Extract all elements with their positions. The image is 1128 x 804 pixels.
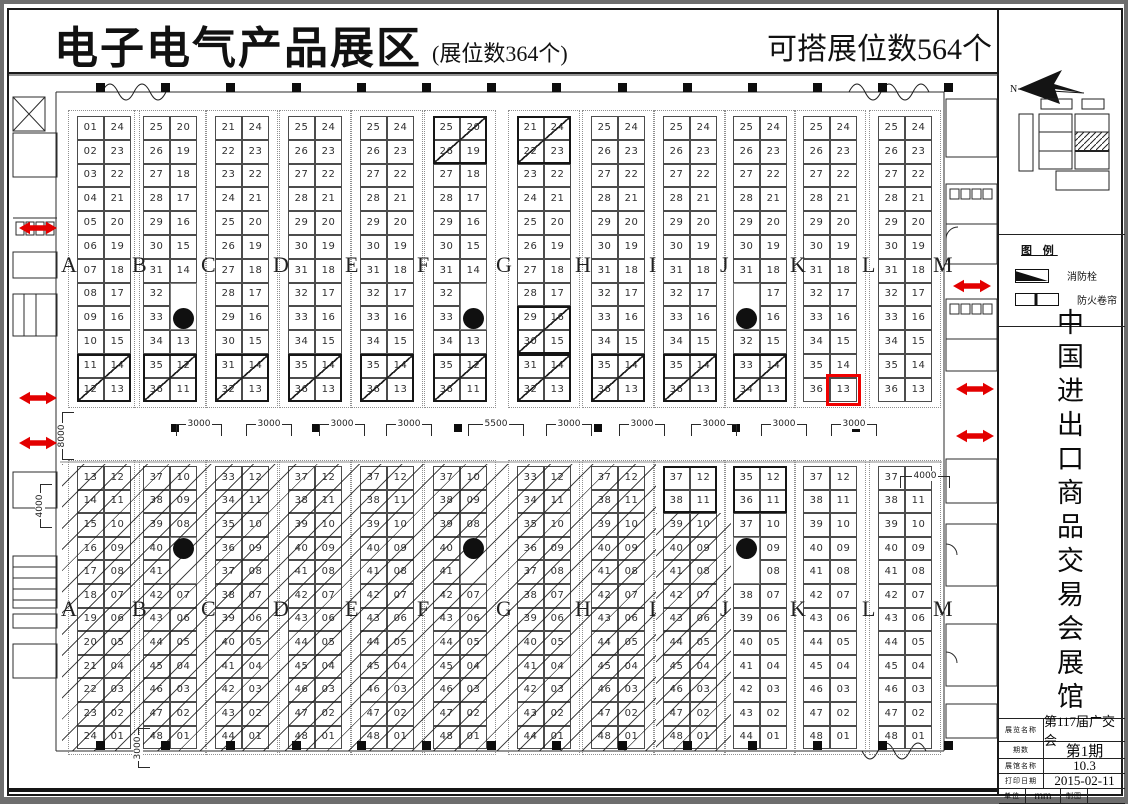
booth-cell: 42 bbox=[663, 584, 690, 608]
dimension-label: 3000 bbox=[246, 424, 292, 437]
sold-booth-block bbox=[517, 306, 571, 354]
booth-cell: 45 bbox=[433, 655, 460, 679]
booth-cell: 09 bbox=[618, 537, 645, 561]
booth-cell: 04 bbox=[460, 655, 487, 679]
booth-cell: 34 bbox=[143, 330, 170, 354]
booth-cell: 17 bbox=[905, 283, 932, 307]
booth-cell: 03 bbox=[387, 678, 414, 702]
booth-cell: 42 bbox=[360, 584, 387, 608]
booth-cell: 20 bbox=[690, 211, 717, 235]
booth-cell: 23 bbox=[242, 140, 269, 164]
booth-cell: 38 bbox=[215, 584, 242, 608]
booth-cell: 34 bbox=[288, 330, 315, 354]
booth-cell: 29 bbox=[433, 211, 460, 235]
booth-cell: 15 bbox=[760, 330, 787, 354]
booth-cell: 25 bbox=[215, 211, 242, 235]
reserved-booth-block bbox=[663, 466, 717, 513]
booth-cell: 42 bbox=[878, 584, 905, 608]
booth-cell: 06 bbox=[170, 608, 197, 632]
booth-cell: 44 bbox=[878, 631, 905, 655]
booth-cell: 01 bbox=[104, 726, 131, 750]
wall-pillar bbox=[357, 741, 366, 750]
booth-cell: 43 bbox=[591, 608, 618, 632]
booth-cell: 14 bbox=[905, 354, 932, 378]
booth-cell: 04 bbox=[104, 655, 131, 679]
column-letter: K bbox=[790, 596, 806, 622]
booth-cell: 13 bbox=[905, 378, 932, 402]
wall-pillar bbox=[96, 83, 105, 92]
booth-cell: 25 bbox=[803, 116, 830, 140]
booth-cell: 04 bbox=[170, 655, 197, 679]
column-letter: E bbox=[345, 252, 358, 278]
booth-cell: 16 bbox=[170, 211, 197, 235]
booth-cell: 25 bbox=[663, 116, 690, 140]
wall-pillar bbox=[161, 83, 170, 92]
booth-cell: 25 bbox=[143, 116, 170, 140]
booth-cell: 37 bbox=[143, 466, 170, 490]
booth-cell: 06 bbox=[830, 608, 857, 632]
booth-cell: 28 bbox=[517, 283, 544, 307]
booth-cell: 18 bbox=[170, 164, 197, 188]
booth-cell: 03 bbox=[544, 678, 571, 702]
booth-cell: 39 bbox=[517, 608, 544, 632]
booth-cell: 26 bbox=[733, 140, 760, 164]
titleblock-value: 第117届广交会 bbox=[1044, 719, 1125, 741]
booth-cell: 33 bbox=[591, 306, 618, 330]
booth-cell: 31 bbox=[433, 259, 460, 283]
wall-pillar bbox=[944, 83, 953, 92]
booth-cell: 30 bbox=[803, 235, 830, 259]
booth-cell: 01 bbox=[77, 116, 104, 140]
booth-cell: 01 bbox=[242, 726, 269, 750]
column-letter: B bbox=[132, 252, 147, 278]
booth-cell: 06 bbox=[760, 608, 787, 632]
booth-cell: 26 bbox=[143, 140, 170, 164]
booth-cell: 04 bbox=[618, 655, 645, 679]
booth-cell: 07 bbox=[104, 584, 131, 608]
structural-pillar bbox=[463, 308, 484, 329]
booth-cell: 07 bbox=[387, 584, 414, 608]
booth-cell: 22 bbox=[315, 164, 342, 188]
booth-cell: 41 bbox=[733, 655, 760, 679]
booth-cell: 21 bbox=[760, 187, 787, 211]
booth-cell: 06 bbox=[460, 608, 487, 632]
booth-cell: 16 bbox=[242, 306, 269, 330]
booth-cell: 28 bbox=[591, 187, 618, 211]
booth-cell: 21 bbox=[242, 187, 269, 211]
booth-cell: 07 bbox=[77, 259, 104, 283]
booth-cell: 10 bbox=[830, 513, 857, 537]
aisle-pillar bbox=[454, 424, 462, 432]
booth-cell: 23 bbox=[618, 140, 645, 164]
booth-cell: 19 bbox=[104, 235, 131, 259]
structural-pillar bbox=[736, 538, 757, 559]
booth-cell: 34 bbox=[517, 490, 544, 514]
booth-cell: 44 bbox=[663, 631, 690, 655]
booth-cell: 45 bbox=[803, 655, 830, 679]
booth-cell: 21 bbox=[387, 187, 414, 211]
wall-pillar bbox=[226, 83, 235, 92]
booth-cell: 12 bbox=[387, 466, 414, 490]
sold-booth-block bbox=[663, 354, 717, 402]
dimension-label: 3000 bbox=[831, 424, 877, 437]
booth-cell: 38 bbox=[433, 490, 460, 514]
booth-cell: 33 bbox=[517, 466, 544, 490]
exit-arrow-icon bbox=[952, 278, 992, 294]
booth-cell: 29 bbox=[733, 211, 760, 235]
column-letter: F bbox=[417, 596, 429, 622]
booth-cell: 29 bbox=[663, 211, 690, 235]
wall-pillar bbox=[487, 741, 496, 750]
booth-cell: 47 bbox=[803, 702, 830, 726]
booth-cell: 17 bbox=[544, 283, 571, 307]
booth-cell: 09 bbox=[460, 490, 487, 514]
booth-cell: 44 bbox=[360, 631, 387, 655]
booth-cell: 15 bbox=[830, 330, 857, 354]
booth-cell: 27 bbox=[803, 164, 830, 188]
booth-cell: 15 bbox=[460, 235, 487, 259]
booth-cell: 28 bbox=[803, 187, 830, 211]
booth-cell: 34 bbox=[663, 330, 690, 354]
booth-cell: 33 bbox=[433, 306, 460, 330]
titleblock-value: 10.3 bbox=[1044, 759, 1125, 773]
reserved-booth-block bbox=[733, 466, 787, 513]
booth-cell: 05 bbox=[315, 631, 342, 655]
booth-cell: 23 bbox=[315, 140, 342, 164]
booth-cell: 02 bbox=[690, 702, 717, 726]
booth-cell: 21 bbox=[315, 187, 342, 211]
booth-cell: 18 bbox=[618, 259, 645, 283]
booth-cell: 07 bbox=[905, 584, 932, 608]
booth-cell: 09 bbox=[690, 537, 717, 561]
booth-cell: 36 bbox=[215, 537, 242, 561]
booth-cell: 04 bbox=[905, 655, 932, 679]
wall-pillar bbox=[618, 83, 627, 92]
booth-cell: 41 bbox=[215, 655, 242, 679]
booth-cell: 31 bbox=[143, 259, 170, 283]
booth-cell: 21 bbox=[77, 655, 104, 679]
dimension-label: 3000 bbox=[761, 424, 807, 437]
booth-cell: 29 bbox=[288, 211, 315, 235]
booth-cell: 02 bbox=[618, 702, 645, 726]
booth-cell: 17 bbox=[104, 283, 131, 307]
booth-cell: 40 bbox=[663, 537, 690, 561]
booth-cell: 23 bbox=[690, 140, 717, 164]
booth-cell: 02 bbox=[77, 140, 104, 164]
sold-booth-block bbox=[360, 354, 414, 402]
column-letter: D bbox=[273, 252, 289, 278]
wall-pillar bbox=[226, 741, 235, 750]
wall-pillar bbox=[422, 741, 431, 750]
booth-cell: 31 bbox=[663, 259, 690, 283]
booth-cell: 35 bbox=[878, 354, 905, 378]
booth-cell: 12 bbox=[242, 466, 269, 490]
booth-cell: 06 bbox=[905, 608, 932, 632]
booth-cell: 39 bbox=[803, 513, 830, 537]
wall-pillar bbox=[487, 83, 496, 92]
booth-cell: 38 bbox=[288, 490, 315, 514]
booth-cell: 18 bbox=[544, 259, 571, 283]
booth-cell: 33 bbox=[215, 466, 242, 490]
booth-cell: 30 bbox=[733, 235, 760, 259]
booth-cell: 47 bbox=[433, 702, 460, 726]
booth-cell: 05 bbox=[104, 631, 131, 655]
booth-cell: 24 bbox=[905, 116, 932, 140]
booth-cell: 05 bbox=[830, 631, 857, 655]
titleblock-label: 打印日期 bbox=[999, 774, 1044, 788]
booth-cell: 23 bbox=[760, 140, 787, 164]
booth-cell: 29 bbox=[360, 211, 387, 235]
booth-cell: 39 bbox=[663, 513, 690, 537]
booth-cell: 33 bbox=[360, 306, 387, 330]
booth-cell: 22 bbox=[77, 678, 104, 702]
booth-cell: 07 bbox=[242, 584, 269, 608]
booth-cell: 24 bbox=[242, 116, 269, 140]
booth-cell: 44 bbox=[803, 631, 830, 655]
booth-cell: 05 bbox=[387, 631, 414, 655]
booth-cell: 01 bbox=[460, 726, 487, 750]
booth-cell: 44 bbox=[143, 631, 170, 655]
booth-cell: 15 bbox=[242, 330, 269, 354]
booth-cell: 42 bbox=[215, 678, 242, 702]
booth-cell: 45 bbox=[143, 655, 170, 679]
booth-cell: 37 bbox=[591, 466, 618, 490]
booth-cell: 30 bbox=[288, 235, 315, 259]
column-letter: H bbox=[575, 252, 591, 278]
booth-cell: 22 bbox=[242, 164, 269, 188]
wall-pillar bbox=[357, 83, 366, 92]
booth-cell: 26 bbox=[215, 235, 242, 259]
booth-cell: 39 bbox=[878, 513, 905, 537]
booth-cell: 28 bbox=[733, 187, 760, 211]
booth-cell: 27 bbox=[663, 164, 690, 188]
booth-cell: 17 bbox=[760, 283, 787, 307]
booth-cell: 19 bbox=[77, 608, 104, 632]
booth-cell: 40 bbox=[288, 537, 315, 561]
booth-cell: 06 bbox=[315, 608, 342, 632]
booth-cell: 14 bbox=[170, 259, 197, 283]
booth-cell: 25 bbox=[591, 116, 618, 140]
booth-cell: 47 bbox=[143, 702, 170, 726]
booth-cell: 18 bbox=[690, 259, 717, 283]
booth-cell: 27 bbox=[143, 164, 170, 188]
booth-cell: 21 bbox=[104, 187, 131, 211]
booth-cell: 37 bbox=[433, 466, 460, 490]
booth-cell: 19 bbox=[387, 235, 414, 259]
booth-cell: 23 bbox=[517, 164, 544, 188]
wall-pillar bbox=[748, 741, 757, 750]
exit-arrow-icon bbox=[18, 390, 58, 406]
column-letter: A bbox=[61, 596, 77, 622]
booth-cell: 39 bbox=[591, 513, 618, 537]
booth-cell: 40 bbox=[215, 631, 242, 655]
booth-cell: 19 bbox=[170, 140, 197, 164]
booth-cell: 03 bbox=[690, 678, 717, 702]
booth-cell: 13 bbox=[77, 466, 104, 490]
booth-cell: 25 bbox=[517, 211, 544, 235]
booth-cell: 02 bbox=[315, 702, 342, 726]
booth-cell: 24 bbox=[690, 116, 717, 140]
booth-cell: 12 bbox=[830, 466, 857, 490]
booth-cell: 33 bbox=[143, 306, 170, 330]
booth-cell: 03 bbox=[830, 678, 857, 702]
booth-cell: 31 bbox=[591, 259, 618, 283]
booth-cell: 20 bbox=[242, 211, 269, 235]
booth-cell: 28 bbox=[433, 187, 460, 211]
booth-cell: 35 bbox=[215, 513, 242, 537]
booth-cell: 09 bbox=[104, 537, 131, 561]
booth-cell: 26 bbox=[663, 140, 690, 164]
booth-cell: 04 bbox=[760, 655, 787, 679]
column-letter: G bbox=[496, 596, 512, 622]
booth-cell: 31 bbox=[803, 259, 830, 283]
booth-cell: 24 bbox=[215, 187, 242, 211]
booth-cell: 34 bbox=[360, 330, 387, 354]
booth-cell: 19 bbox=[690, 235, 717, 259]
booth-cell: 06 bbox=[387, 608, 414, 632]
booth-cell: 08 bbox=[618, 560, 645, 584]
titleblock-footer-row: 单位mm制图 bbox=[999, 789, 1125, 804]
booth-cell: 43 bbox=[143, 608, 170, 632]
booth-cell: 16 bbox=[830, 306, 857, 330]
booth-cell: 20 bbox=[618, 211, 645, 235]
booth-cell: 27 bbox=[360, 164, 387, 188]
booth-cell: 10 bbox=[104, 513, 131, 537]
booth-cell: 21 bbox=[830, 187, 857, 211]
booth-cell: 02 bbox=[905, 702, 932, 726]
booth-cell: 30 bbox=[433, 235, 460, 259]
booth-cell: 08 bbox=[77, 283, 104, 307]
booth-cell: 32 bbox=[663, 283, 690, 307]
wall-pillar bbox=[161, 741, 170, 750]
booth-cell: 08 bbox=[760, 560, 787, 584]
booth-cell: 13 bbox=[460, 330, 487, 354]
booth-cell: 26 bbox=[360, 140, 387, 164]
dimension-label: 8000 bbox=[62, 412, 75, 460]
booth-cell: 37 bbox=[288, 466, 315, 490]
booth-cell: 43 bbox=[803, 608, 830, 632]
wall-pillar bbox=[552, 83, 561, 92]
column-letter: J bbox=[720, 596, 729, 622]
booth-cell: 22 bbox=[618, 164, 645, 188]
booth-cell: 13 bbox=[170, 330, 197, 354]
booth-cell: 26 bbox=[878, 140, 905, 164]
booth-cell: 12 bbox=[544, 466, 571, 490]
booth-cell: 43 bbox=[517, 702, 544, 726]
booth-cell: 32 bbox=[288, 283, 315, 307]
booth-cell: 16 bbox=[905, 306, 932, 330]
booth-cell: 01 bbox=[760, 726, 787, 750]
booth-cell: 09 bbox=[315, 537, 342, 561]
booth-cell: 46 bbox=[878, 678, 905, 702]
titleblock-label: 展馆名称 bbox=[999, 759, 1044, 773]
booth-cell: 37 bbox=[733, 513, 760, 537]
booth-cell: 46 bbox=[433, 678, 460, 702]
booth-cell: 41 bbox=[517, 655, 544, 679]
sold-booth-block bbox=[517, 354, 571, 402]
booth-cell: 28 bbox=[878, 187, 905, 211]
booth-cell: 02 bbox=[830, 702, 857, 726]
column-letter: H bbox=[575, 596, 591, 622]
booth-cell: 42 bbox=[733, 678, 760, 702]
booth-cell: 19 bbox=[618, 235, 645, 259]
booth-cell: 03 bbox=[242, 678, 269, 702]
booth-cell: 10 bbox=[460, 466, 487, 490]
booth-cell: 02 bbox=[460, 702, 487, 726]
booth-cell: 16 bbox=[690, 306, 717, 330]
booth-cell: 39 bbox=[733, 608, 760, 632]
booth-cell: 46 bbox=[143, 678, 170, 702]
booth-cell: 42 bbox=[288, 584, 315, 608]
booth-cell: 39 bbox=[143, 513, 170, 537]
column-letter: J bbox=[720, 252, 729, 278]
booth-cell: 38 bbox=[733, 584, 760, 608]
booth-cell: 29 bbox=[591, 211, 618, 235]
column-letter: C bbox=[201, 252, 216, 278]
booth-cell: 08 bbox=[905, 560, 932, 584]
booth-cell: 20 bbox=[905, 211, 932, 235]
dimension-label: 4000 bbox=[40, 484, 53, 528]
column-letter: L bbox=[862, 596, 875, 622]
booth-cell: 20 bbox=[315, 211, 342, 235]
booth-cell: 20 bbox=[830, 211, 857, 235]
booth-cell: 03 bbox=[170, 678, 197, 702]
booth-cell: 17 bbox=[242, 283, 269, 307]
structural-pillar bbox=[173, 308, 194, 329]
booth-cell: 34 bbox=[215, 490, 242, 514]
column-letter: M bbox=[933, 596, 953, 622]
booth-cell: 43 bbox=[878, 608, 905, 632]
booth-cell: 06 bbox=[690, 608, 717, 632]
sold-booth-block bbox=[433, 354, 487, 402]
booth-cell: 21 bbox=[905, 187, 932, 211]
booth-cell: 07 bbox=[618, 584, 645, 608]
booth-cell: 11 bbox=[242, 490, 269, 514]
exit-arrow-icon bbox=[955, 428, 995, 444]
booth-cell: 11 bbox=[905, 490, 932, 514]
booth-cell: 07 bbox=[760, 584, 787, 608]
exit-arrow-icon bbox=[955, 381, 995, 397]
titleblock-row: 展览名称第117届广交会 bbox=[999, 719, 1125, 742]
booth-cell: 23 bbox=[387, 140, 414, 164]
booth-cell: 23 bbox=[215, 164, 242, 188]
booth-cell: 07 bbox=[544, 584, 571, 608]
booth-cell: 40 bbox=[591, 537, 618, 561]
booth-cell: 48 bbox=[591, 726, 618, 750]
booth-cell: 28 bbox=[360, 187, 387, 211]
sold-booth-block bbox=[288, 354, 342, 402]
wall-pillar bbox=[618, 741, 627, 750]
column-letter: G bbox=[496, 252, 512, 278]
column-letter: F bbox=[417, 252, 429, 278]
booth-cell: 25 bbox=[360, 116, 387, 140]
titleblock-label: 展览名称 bbox=[999, 719, 1044, 741]
booth-cell: 29 bbox=[143, 211, 170, 235]
booth-cell: 22 bbox=[760, 164, 787, 188]
booth-cell: 04 bbox=[242, 655, 269, 679]
wall-pillar bbox=[552, 741, 561, 750]
booth-cell: 15 bbox=[170, 235, 197, 259]
titleblock-row: 打印日期2015-02-11 bbox=[999, 774, 1125, 789]
booth-cell: 02 bbox=[387, 702, 414, 726]
booth-cell: 43 bbox=[288, 608, 315, 632]
booth-cell: 46 bbox=[663, 678, 690, 702]
exit-arrow-icon bbox=[18, 435, 58, 451]
sold-booth-block bbox=[733, 354, 787, 402]
booth-cell: 38 bbox=[803, 490, 830, 514]
sold-booth-block bbox=[77, 354, 131, 402]
sold-booth-block bbox=[517, 116, 571, 164]
